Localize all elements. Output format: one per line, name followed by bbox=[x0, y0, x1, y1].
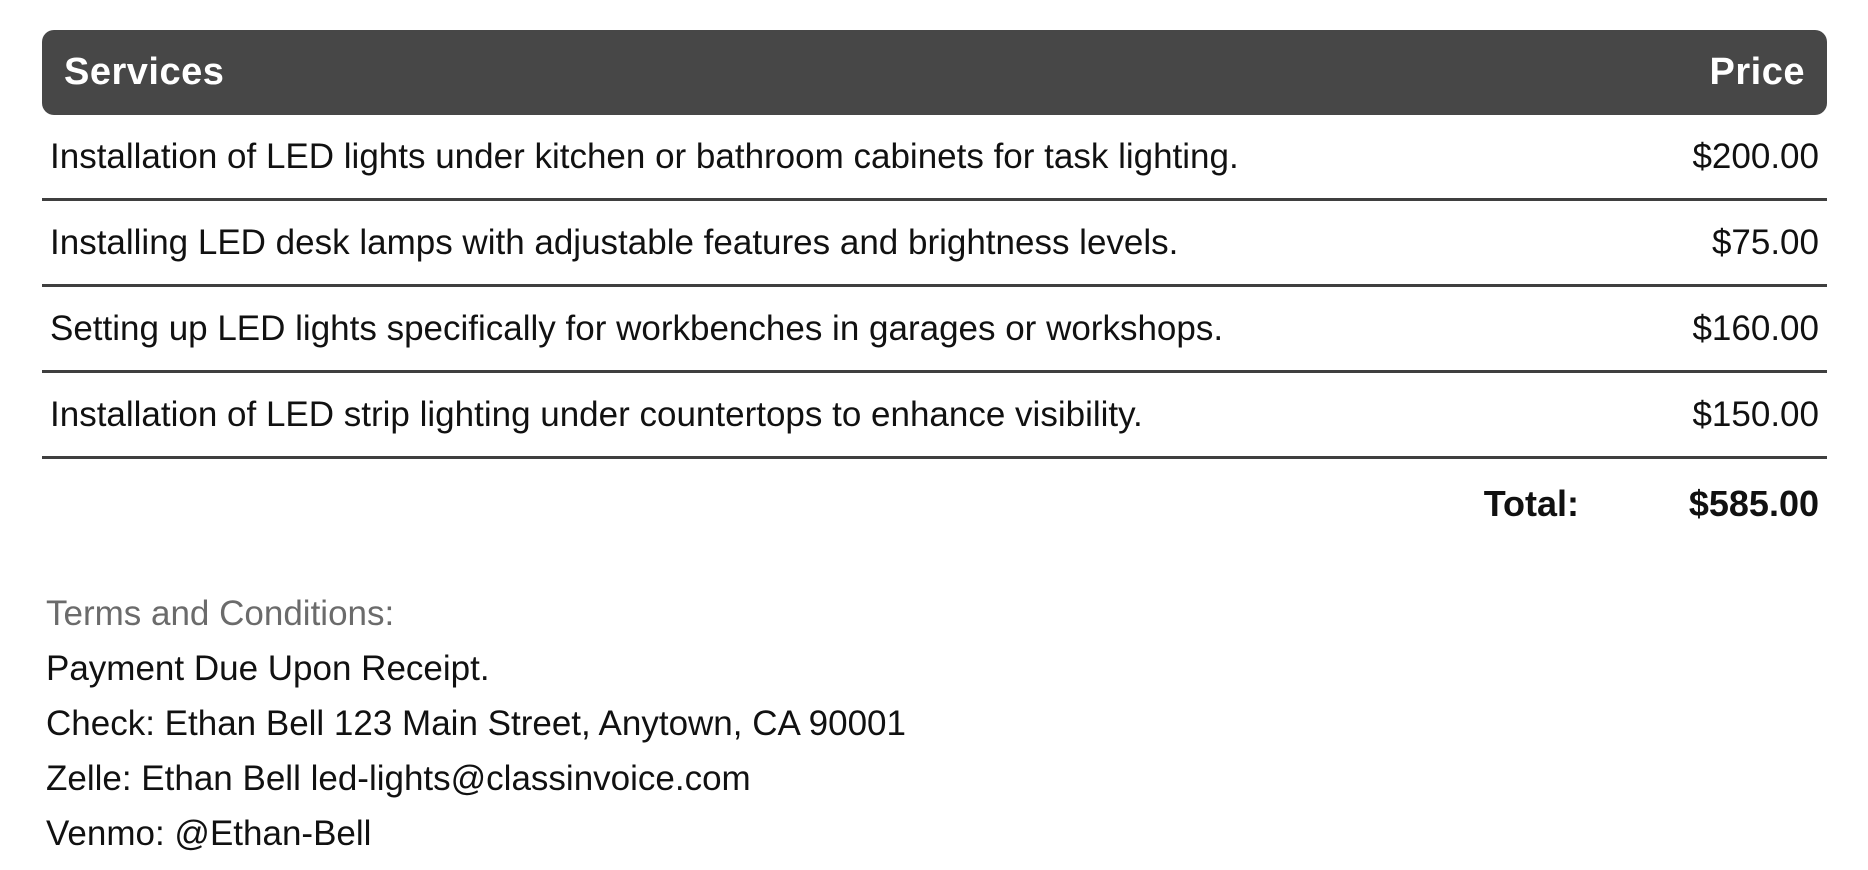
service-description: Installation of LED strip lighting under… bbox=[50, 395, 1143, 435]
service-price: $150.00 bbox=[1672, 395, 1819, 435]
service-description: Setting up LED lights specifically for w… bbox=[50, 309, 1223, 349]
table-row: Installing LED desk lamps with adjustabl… bbox=[42, 201, 1827, 287]
total-label: Total: bbox=[1484, 483, 1579, 525]
service-price: $160.00 bbox=[1672, 309, 1819, 349]
terms-line-zelle: Zelle: Ethan Bell led-lights@classinvoic… bbox=[46, 751, 1827, 806]
services-table-header: Services Price bbox=[42, 30, 1827, 115]
table-row: Installation of LED strip lighting under… bbox=[42, 373, 1827, 459]
services-table: Services Price Installation of LED light… bbox=[42, 30, 1827, 549]
table-row: Setting up LED lights specifically for w… bbox=[42, 287, 1827, 373]
terms-line-venmo: Venmo: @Ethan-Bell bbox=[46, 806, 1827, 861]
terms-line-check: Check: Ethan Bell 123 Main Street, Anyto… bbox=[46, 696, 1827, 751]
invoice-page: Services Price Installation of LED light… bbox=[0, 0, 1868, 870]
service-description: Installing LED desk lamps with adjustabl… bbox=[50, 223, 1178, 263]
table-row: Installation of LED lights under kitchen… bbox=[42, 115, 1827, 201]
terms-heading: Terms and Conditions: bbox=[46, 586, 1827, 641]
service-price: $75.00 bbox=[1692, 223, 1819, 263]
terms-line-payment-due: Payment Due Upon Receipt. bbox=[46, 641, 1827, 696]
services-column-header: Services bbox=[64, 51, 224, 94]
service-price: $200.00 bbox=[1672, 137, 1819, 177]
total-value: $585.00 bbox=[1579, 483, 1819, 525]
total-row: Total: $585.00 bbox=[42, 459, 1827, 549]
service-description: Installation of LED lights under kitchen… bbox=[50, 137, 1239, 177]
price-column-header: Price bbox=[1710, 51, 1805, 94]
terms-section: Terms and Conditions: Payment Due Upon R… bbox=[42, 586, 1827, 861]
